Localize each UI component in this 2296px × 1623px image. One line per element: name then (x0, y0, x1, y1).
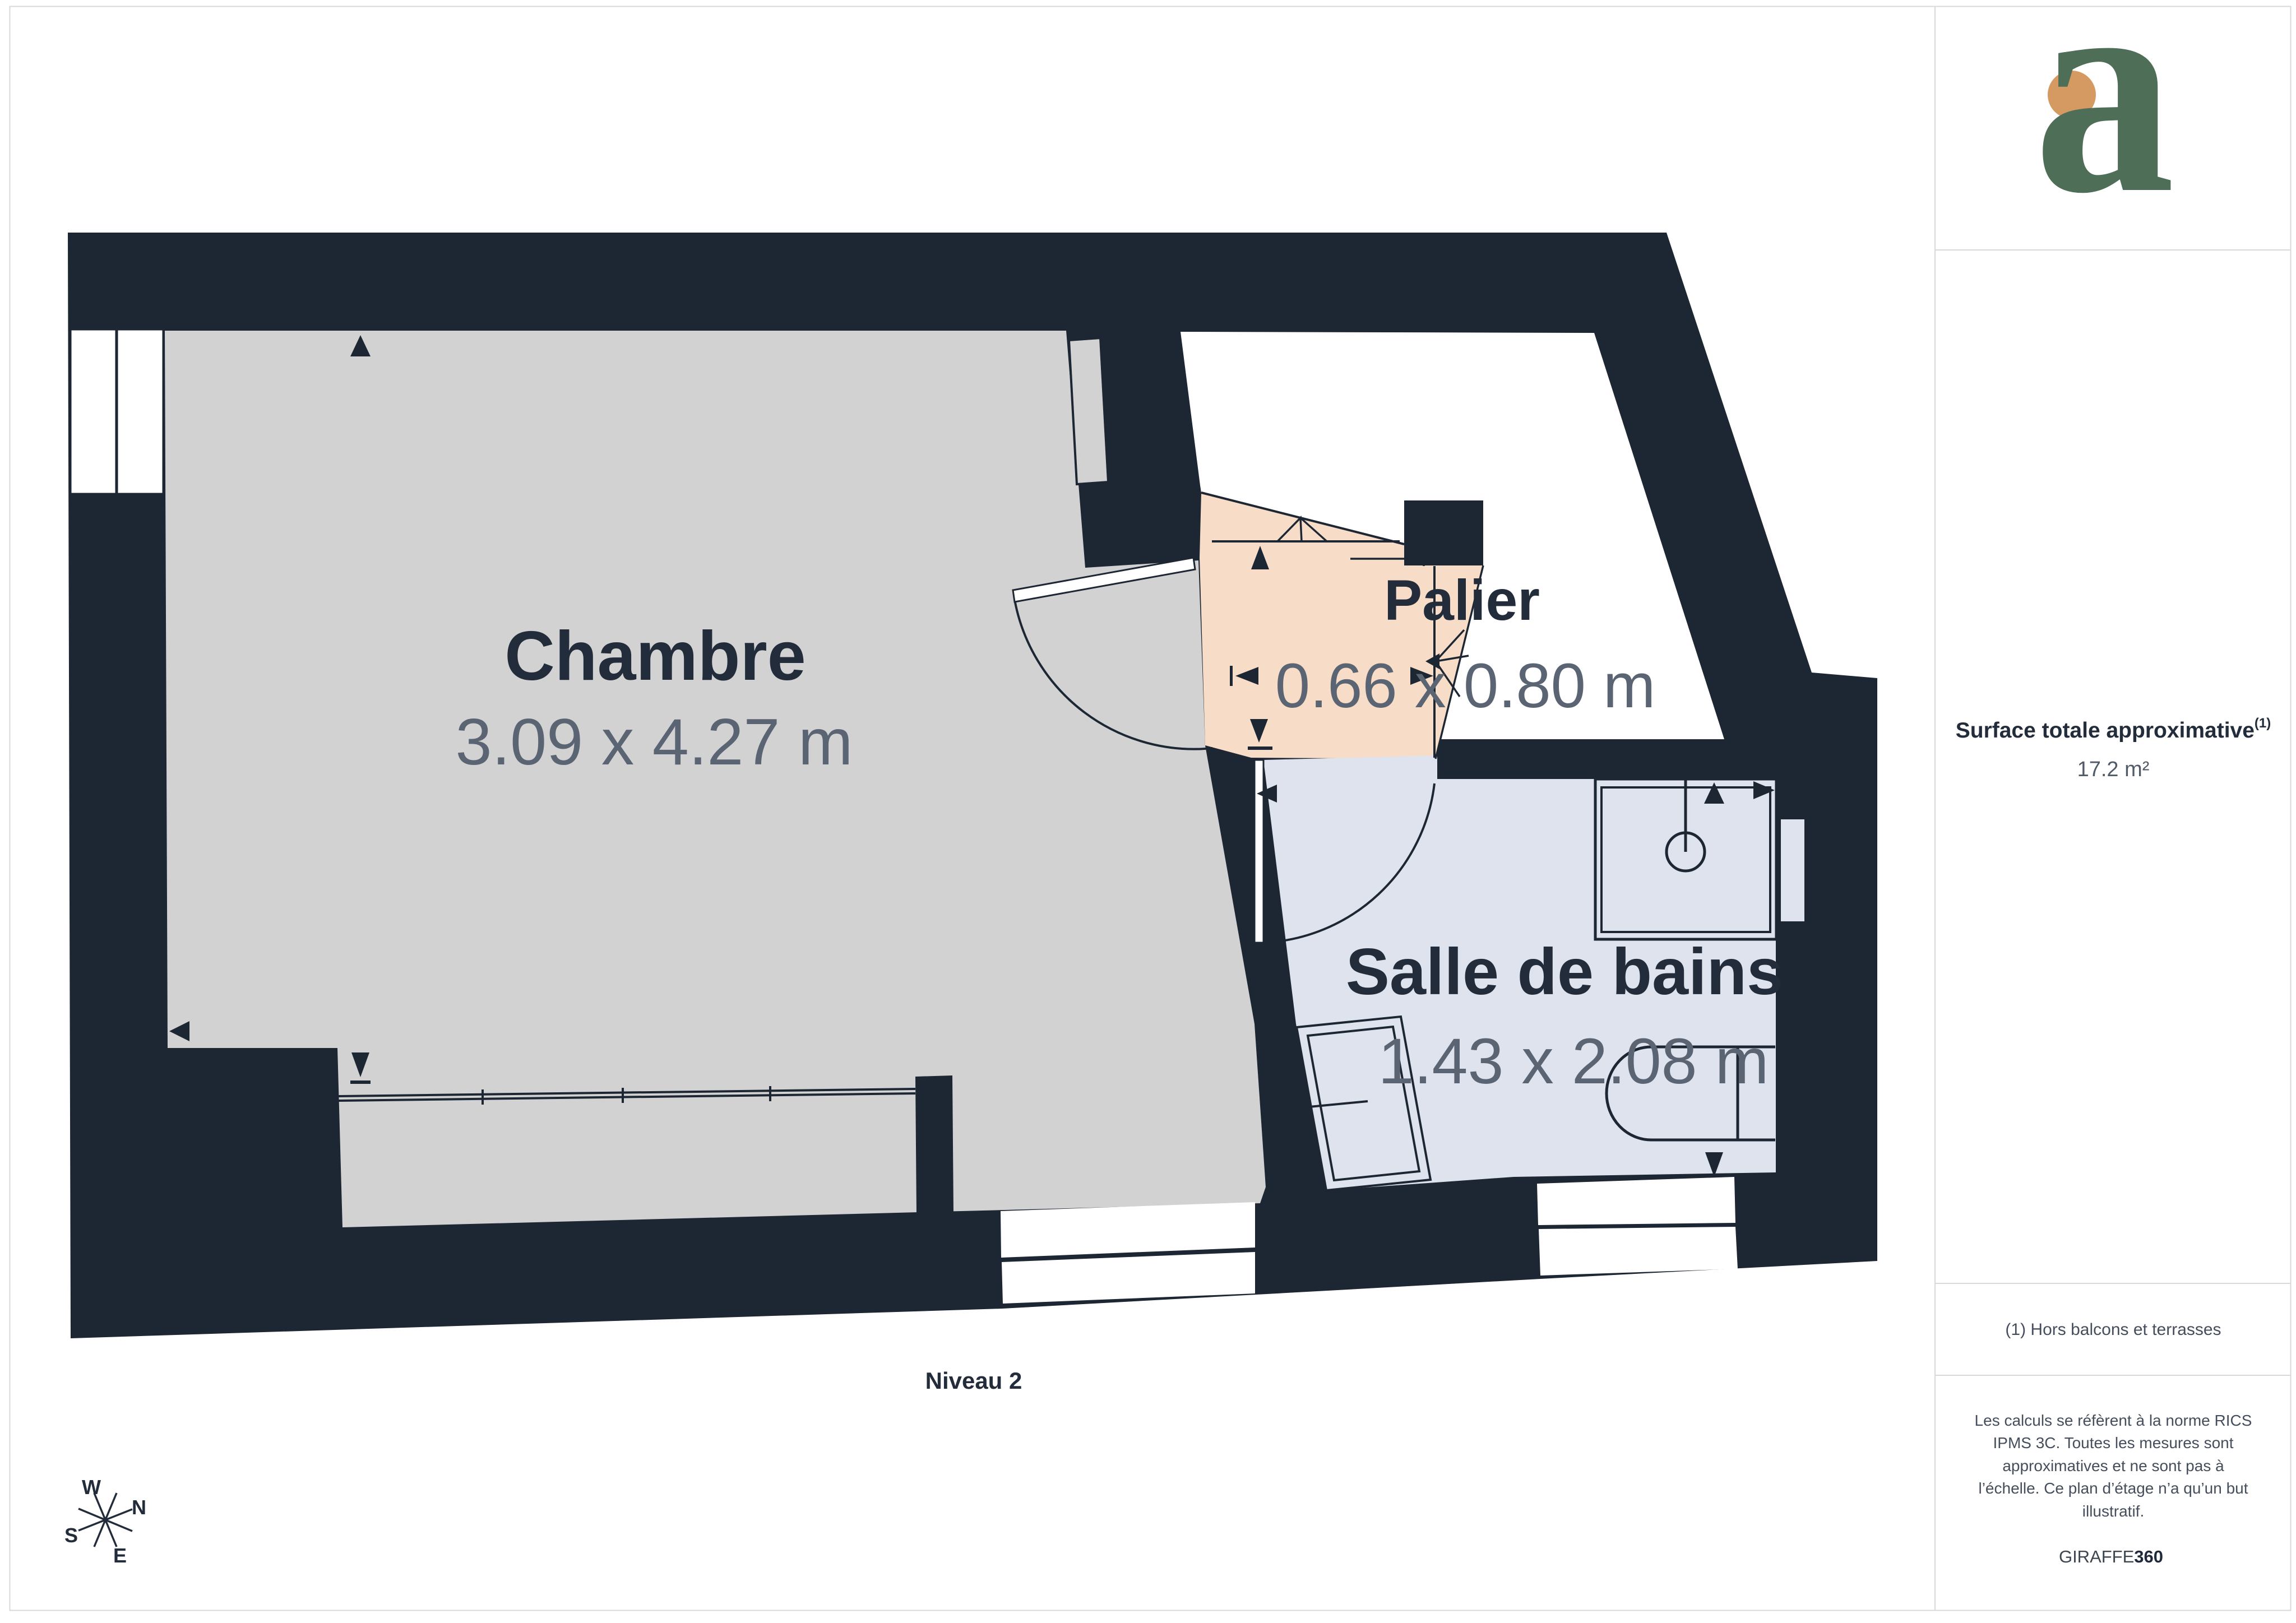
svg-text:l’échelle. Ce plan d’étage n’a: l’échelle. Ce plan d’étage n’a qu’un but (1978, 1480, 2248, 1497)
svg-text:3.09 x 4.27 m: 3.09 x 4.27 m (456, 705, 853, 778)
svg-text:S: S (64, 1524, 78, 1547)
svg-text:approximatives et ne sont pas: approximatives et ne sont pas à (2002, 1457, 2224, 1474)
svg-text:W: W (82, 1476, 101, 1499)
svg-text:Les calculs se réfèrent à la n: Les calculs se réfèrent à la norme RICS (1975, 1412, 2252, 1429)
svg-text:N: N (132, 1496, 146, 1519)
svg-text:0.66 x 0.80 m: 0.66 x 0.80 m (1275, 651, 1656, 721)
svg-text:illustratif.: illustratif. (2082, 1503, 2144, 1520)
svg-text:Surface totale approximative(1: Surface totale approximative(1) (1956, 716, 2271, 743)
svg-text:1.43 x 2.08 m: 1.43 x 2.08 m (1378, 1026, 1769, 1097)
svg-text:Salle de bains: Salle de bains (1346, 935, 1783, 1008)
svg-text:Chambre: Chambre (504, 618, 806, 695)
svg-text:GIRAFFE360: GIRAFFE360 (2059, 1547, 2163, 1566)
svg-text:IPMS 3C. Toutes les mesures so: IPMS 3C. Toutes les mesures sont (1993, 1434, 2234, 1452)
svg-text:(1) Hors balcons et terrasses: (1) Hors balcons et terrasses (2005, 1320, 2221, 1339)
svg-text:Palier: Palier (1384, 568, 1540, 632)
svg-text:Niveau 2: Niveau 2 (925, 1367, 1022, 1394)
svg-text:a: a (2034, 0, 2175, 256)
svg-text:17.2 m²: 17.2 m² (2077, 758, 2150, 781)
svg-text:E: E (113, 1544, 127, 1567)
